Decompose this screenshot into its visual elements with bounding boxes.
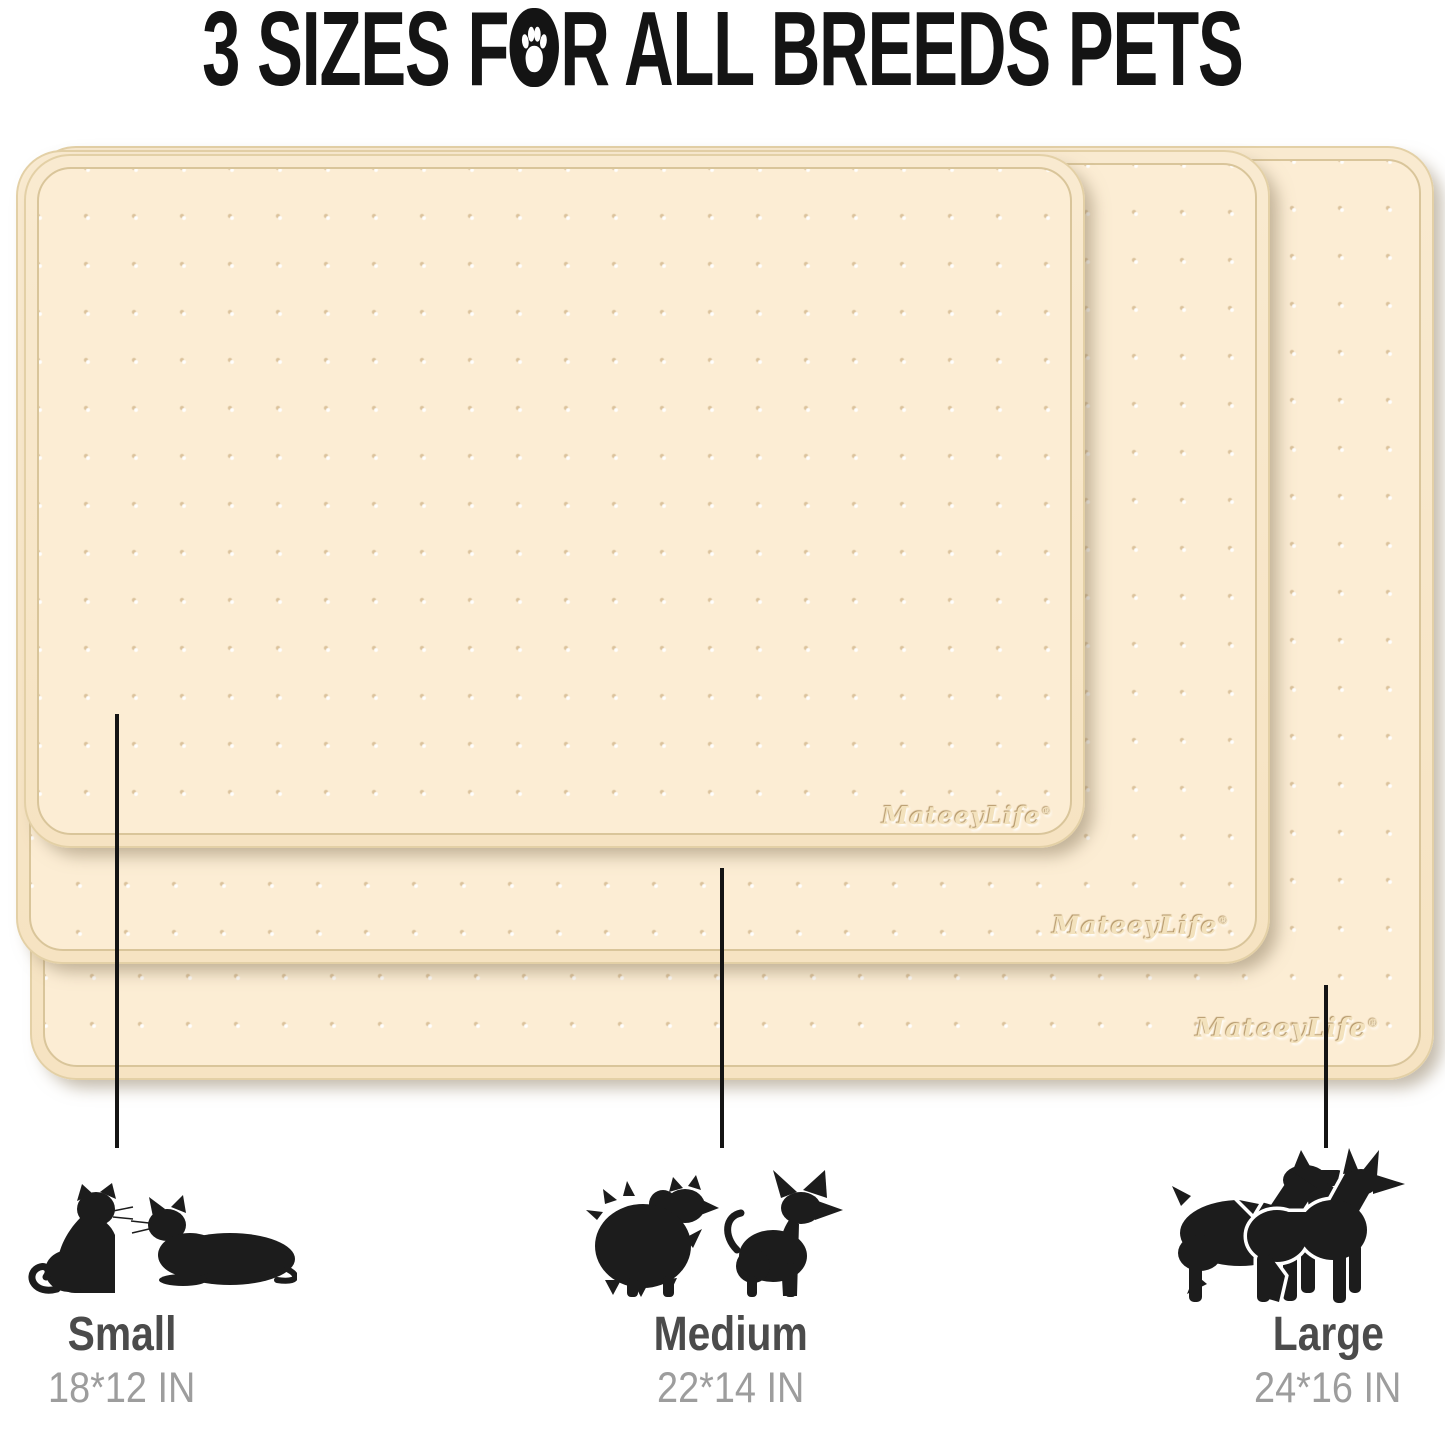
size-dimensions-small: 18*12 IN [48, 1364, 195, 1412]
brand-logo: MateeyLife® [882, 801, 1053, 830]
small-dogs-silhouette-group [585, 1168, 850, 1298]
size-label-large: Large [1272, 1308, 1383, 1362]
large-dogs-silhouette-group [1165, 1148, 1433, 1305]
registered-mark: ® [1218, 914, 1230, 928]
registered-mark: ® [1041, 805, 1053, 818]
callout-line-large [1324, 985, 1328, 1148]
registered-mark: ® [1367, 1016, 1380, 1030]
brand-logo: MateeyLife® [1052, 911, 1230, 940]
pomeranian-icon [586, 1175, 719, 1297]
brand-name: MateeyLife [1052, 911, 1218, 940]
chihuahua-icon [728, 1170, 843, 1297]
callout-line-small [115, 714, 119, 1148]
size-label-medium: Medium [654, 1308, 808, 1362]
mat-small: MateeyLife® [24, 154, 1085, 848]
product-infographic: 3 SIZES F R ALL BREEDS PETS MateeyLife® … [0, 0, 1445, 1431]
page-title: 3 SIZES F R ALL BREEDS PETS [0, 0, 1445, 100]
paw-print-icon [510, 8, 559, 87]
size-caption-large: Large 24*16 IN [1198, 1308, 1445, 1412]
sitting-cat-icon [32, 1183, 133, 1293]
brand-name: MateeyLife [1196, 1014, 1368, 1044]
brand-name: MateeyLife [882, 801, 1041, 830]
title-part-1: 3 SIZES F [202, 0, 508, 108]
cats-silhouette-group [25, 1183, 297, 1295]
size-dimensions-large: 24*16 IN [1254, 1364, 1401, 1412]
size-caption-medium: Medium 22*14 IN [601, 1308, 861, 1412]
brand-logo: MateeyLife® [1196, 1014, 1380, 1044]
size-label-small: Small [68, 1308, 177, 1362]
mat-surface-small [37, 167, 1072, 835]
size-dimensions-medium: 22*14 IN [657, 1364, 804, 1412]
callout-line-medium [720, 868, 724, 1148]
lying-cat-icon [131, 1195, 295, 1286]
size-caption-small: Small 18*12 IN [0, 1308, 252, 1412]
title-part-2: R ALL BREEDS PETS [560, 0, 1242, 108]
